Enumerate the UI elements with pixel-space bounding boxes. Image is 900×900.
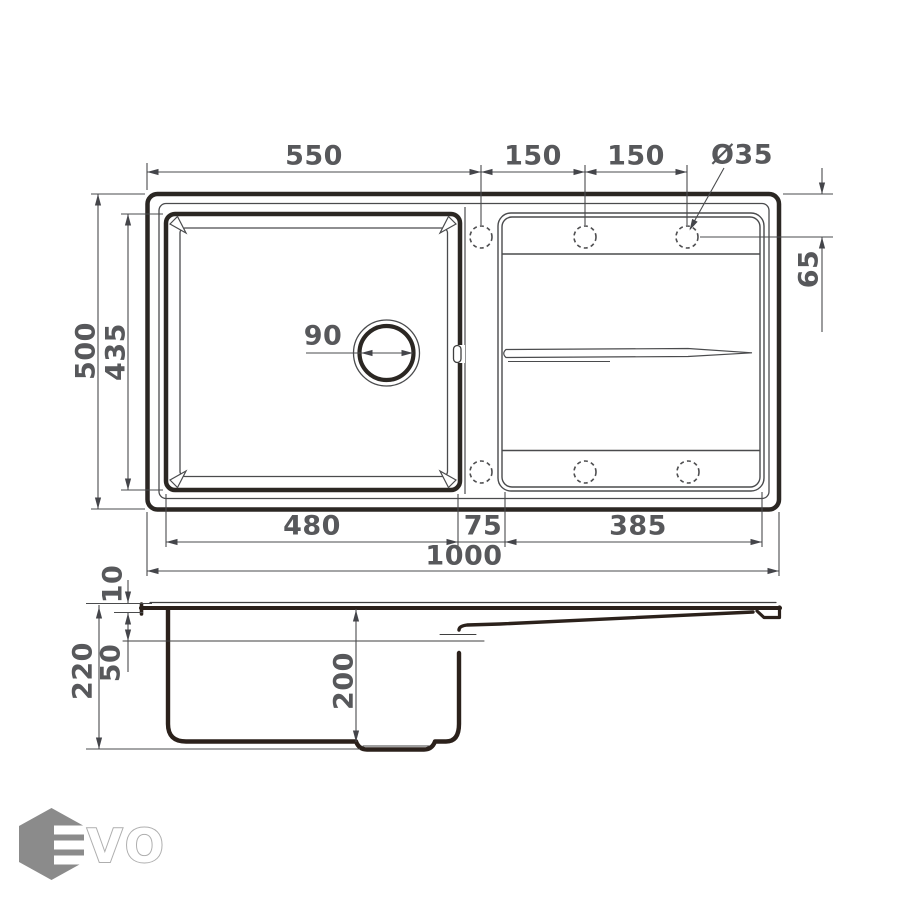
dim-label-left-to-first-hole: 550 xyxy=(285,141,343,172)
arrowhead xyxy=(574,169,586,175)
drainboard-groove xyxy=(504,349,752,358)
arrowhead xyxy=(768,568,780,574)
faucet-hole xyxy=(574,226,596,248)
arrowhead xyxy=(676,169,688,175)
dim-label-bowl-width: 480 xyxy=(283,511,341,542)
arrowhead xyxy=(819,237,825,249)
arrowhead xyxy=(147,169,159,175)
arrowhead xyxy=(470,169,482,175)
arrowhead xyxy=(95,194,101,206)
dim-label-upper-depth: 50 xyxy=(96,644,127,683)
faucet-hole xyxy=(677,461,699,483)
side-view xyxy=(123,603,780,750)
logo-e-bar xyxy=(54,841,84,850)
dim-label-hole-spacing-1: 150 xyxy=(504,141,562,172)
arrowhead xyxy=(819,183,825,195)
dim-label-bowl-depth: 200 xyxy=(329,652,360,710)
dim-label-rim-height: 10 xyxy=(98,565,129,604)
drainboard-slope-profile xyxy=(459,612,753,630)
arrowhead xyxy=(125,479,131,491)
arrowhead xyxy=(96,607,102,619)
dim-label-bowl-inner-depth: 435 xyxy=(101,323,132,381)
arrowhead xyxy=(125,630,131,642)
sink-technical-drawing: 550 150 150 Ø35 65 500 435 90 480 75 385… xyxy=(0,0,900,900)
arrowhead xyxy=(95,498,101,510)
arrowhead xyxy=(505,539,517,545)
arrowhead xyxy=(585,169,597,175)
arrowhead xyxy=(125,613,131,625)
leader-line-hole-diameter xyxy=(690,168,724,229)
brand-logo: VO xyxy=(19,808,167,880)
facet-top-right xyxy=(440,217,456,234)
dim-label-hole-offset: 65 xyxy=(794,250,825,289)
faucet-hole xyxy=(470,226,492,248)
faucet-hole xyxy=(676,226,698,248)
arrowhead xyxy=(402,350,414,356)
dim-label-divider-width: 75 xyxy=(464,511,503,542)
logo-wordmark: VO xyxy=(87,819,167,873)
arrowhead xyxy=(96,738,102,750)
bowl-profile xyxy=(168,609,459,750)
arrowhead xyxy=(125,214,131,226)
facet-top-left xyxy=(170,217,186,234)
dim-label-drain-diameter: 90 xyxy=(304,321,343,352)
bowl-rim-outline xyxy=(166,214,460,490)
logo-letter-e-bars xyxy=(54,826,84,865)
logo-e-bar xyxy=(54,826,84,835)
dim-label-overall-depth: 500 xyxy=(71,322,102,380)
arrowhead xyxy=(361,350,373,356)
logo-e-bar xyxy=(54,856,84,865)
dim-label-overall-height: 220 xyxy=(68,642,99,700)
dim-label-drainboard-width: 385 xyxy=(609,511,667,542)
dim-label-overall-width: 1000 xyxy=(425,541,502,572)
arrowhead xyxy=(147,568,159,574)
dim-label-hole-diameter: Ø35 xyxy=(711,140,773,171)
faucet-hole xyxy=(470,461,492,483)
facet-bottom-right xyxy=(440,471,456,488)
top-view xyxy=(148,194,780,510)
overflow-notch xyxy=(454,346,462,363)
arrowhead xyxy=(166,539,178,545)
faucet-hole xyxy=(574,461,596,483)
arrowhead xyxy=(353,610,359,622)
dim-label-hole-spacing-2: 150 xyxy=(607,141,665,172)
arrowhead xyxy=(481,169,493,175)
facet-bottom-left xyxy=(170,471,186,488)
arrowhead xyxy=(751,539,763,545)
